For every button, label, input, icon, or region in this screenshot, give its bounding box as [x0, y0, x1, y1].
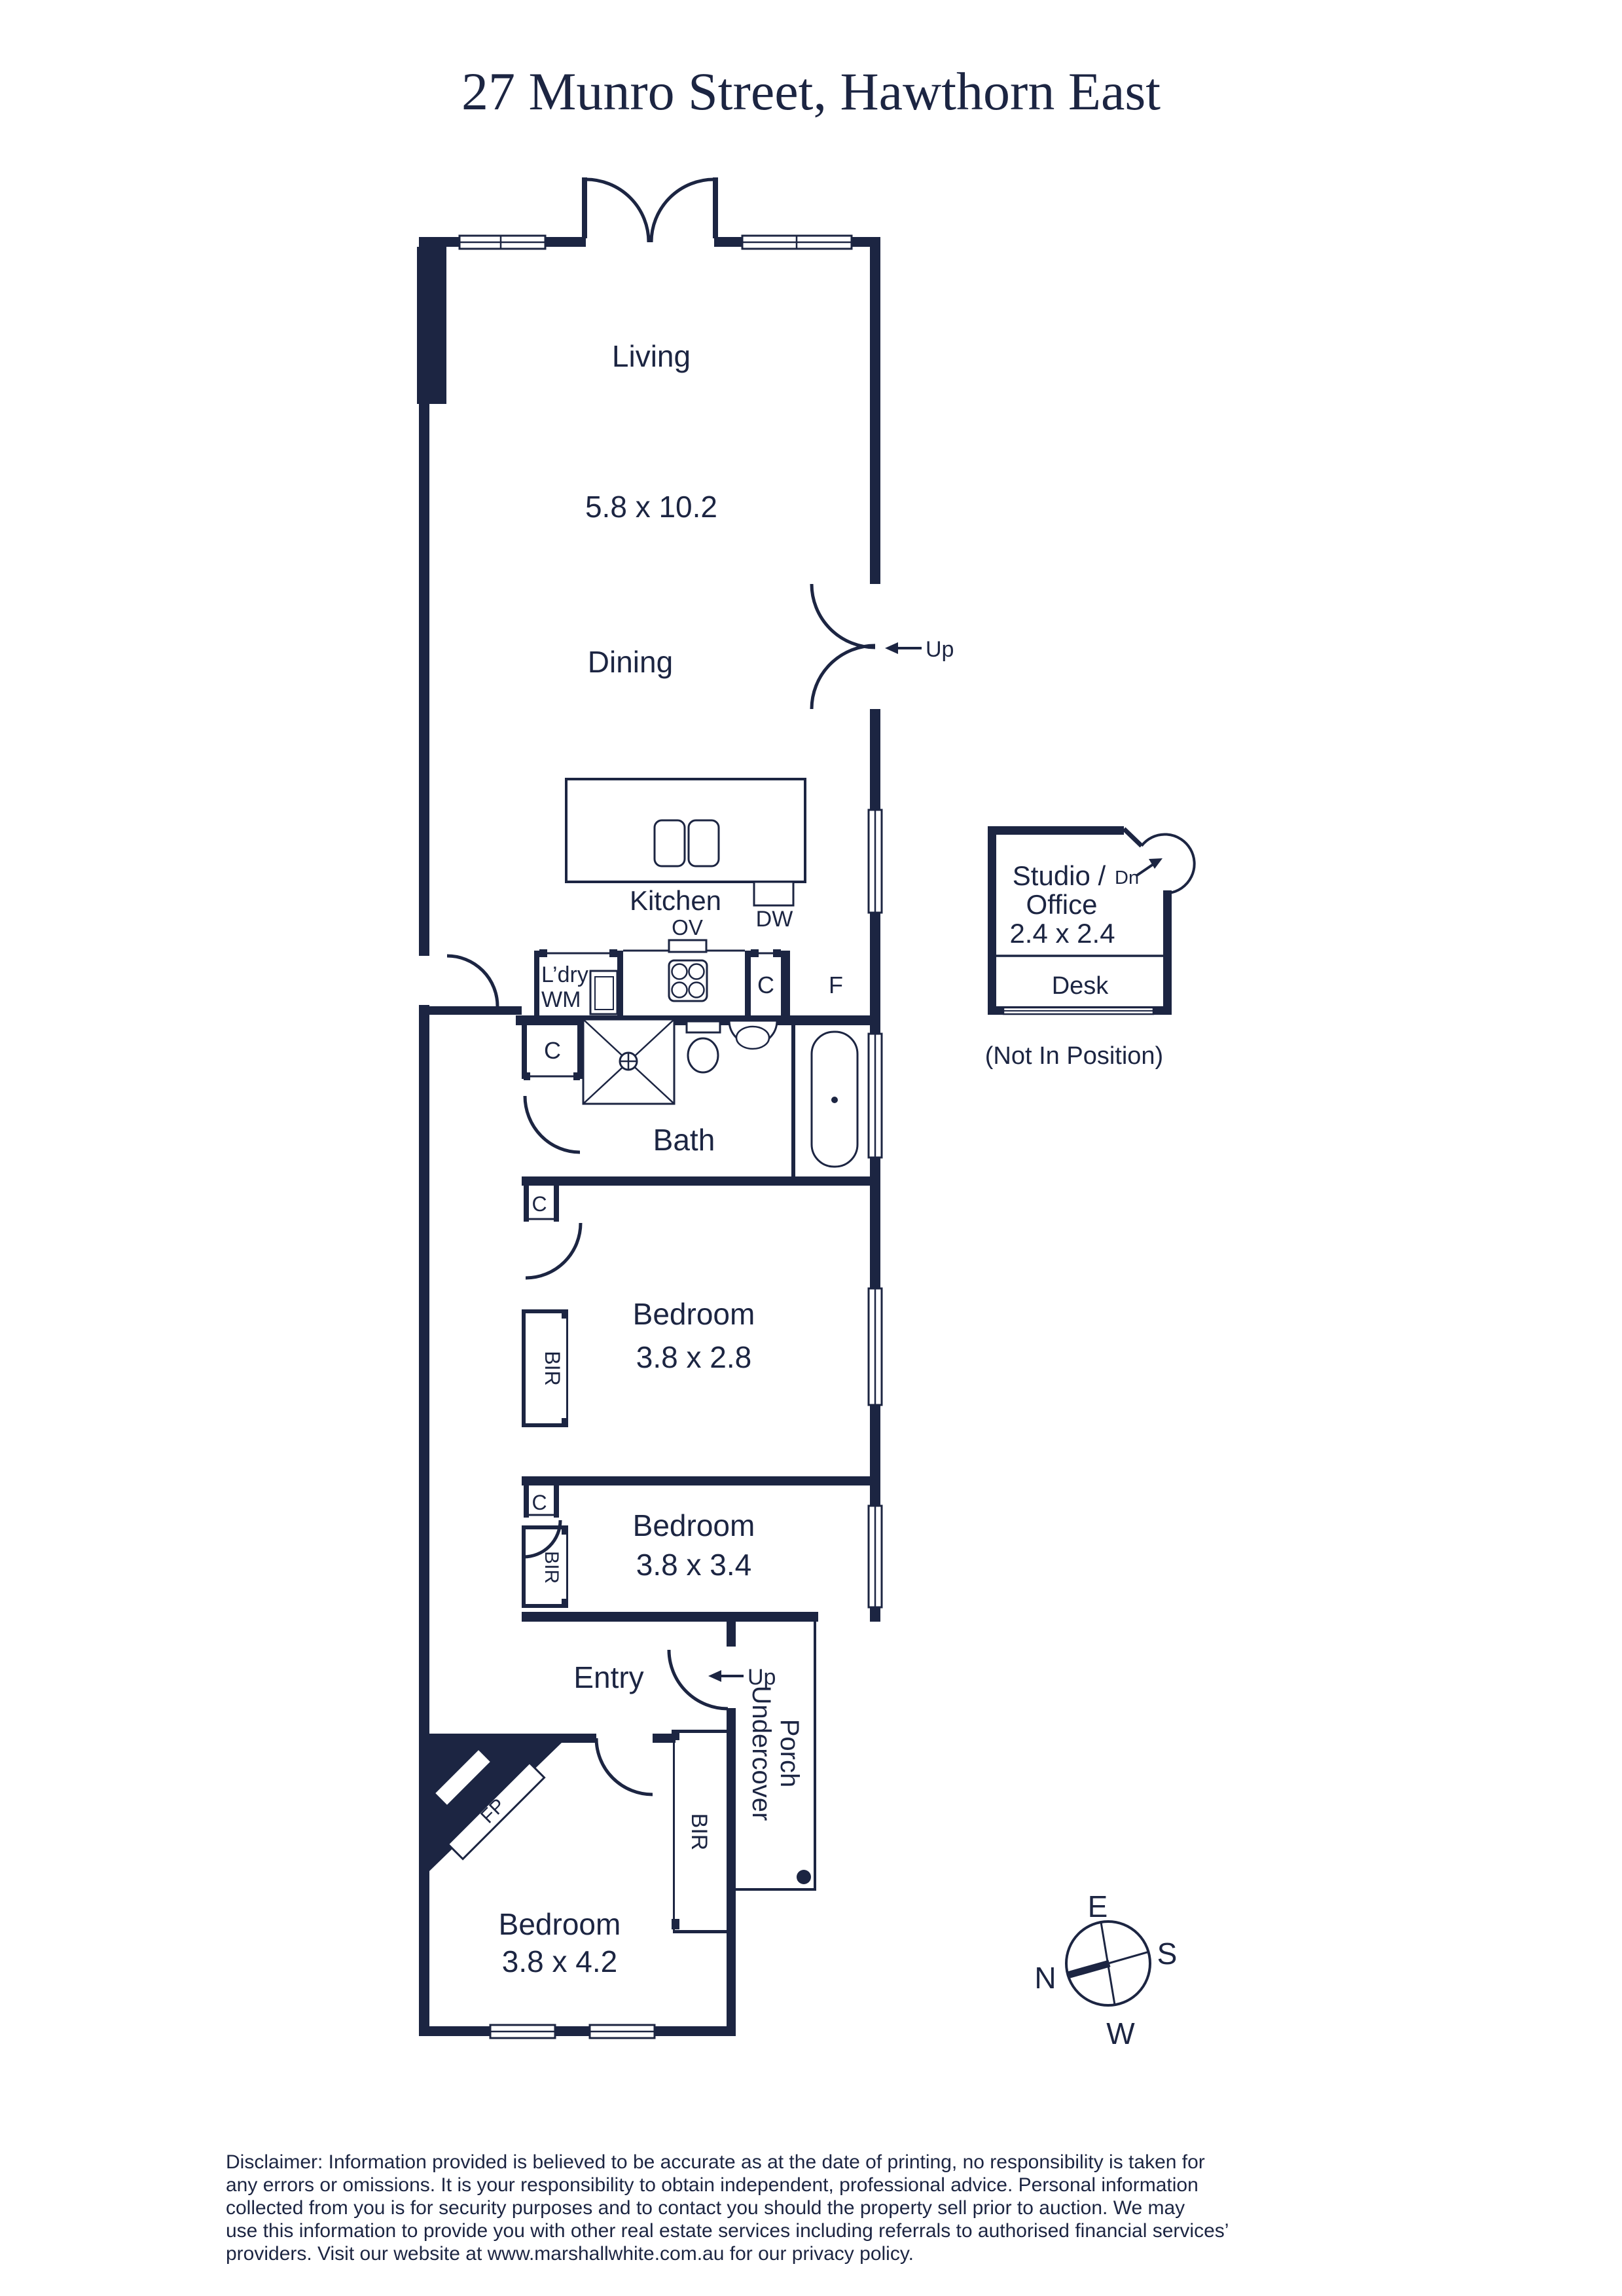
porch-post — [797, 1870, 811, 1884]
porch-label-line1: Undercover — [747, 1686, 776, 1821]
disclaimer-line-1: Disclaimer: Information provided is beli… — [226, 2151, 1205, 2173]
floor-plan-drawing: 27 Munro Street, Hawthorn East — [0, 0, 1622, 2296]
bed3-window-right — [590, 2025, 655, 2038]
bed3-dims: 3.8 x 4.2 — [502, 1944, 617, 1978]
compass: E S W N — [1034, 1889, 1177, 2050]
living-dims: 5.8 x 10.2 — [585, 490, 717, 524]
compass-east: E — [1088, 1889, 1108, 1923]
washing-machine — [590, 971, 617, 1014]
bed1-label: Bedroom — [633, 1297, 755, 1331]
bath-window — [869, 1034, 882, 1157]
fridge-label: F — [829, 972, 843, 998]
studio-label-line1: Studio / — [1013, 860, 1106, 891]
bed1-cupboard-label: C — [532, 1192, 547, 1216]
bed2-window — [869, 1506, 882, 1607]
bed3-window-left — [490, 2025, 555, 2038]
sink-right — [689, 820, 719, 866]
compass-north: N — [1034, 1961, 1056, 1995]
bed1-window — [869, 1288, 882, 1405]
studio-labels: Studio / Dn Office 2.4 x 2.4 Desk (Not I… — [985, 860, 1163, 1070]
hob — [669, 960, 707, 1001]
bed2-dims: 3.8 x 3.4 — [636, 1548, 751, 1582]
disclaimer-line-5: providers. Visit our website at www.mars… — [226, 2243, 914, 2265]
compass-west: W — [1106, 2016, 1135, 2050]
studio-down-arrow — [1137, 858, 1162, 875]
dishwasher-box — [754, 882, 793, 905]
compass-north-needle — [1068, 1963, 1109, 1975]
compass-south: S — [1157, 1937, 1178, 1971]
laundry-label: L’dry — [541, 962, 588, 987]
studio-label-line2: Office — [1026, 889, 1098, 920]
studio-desk-label: Desk — [1052, 972, 1109, 1000]
dining-label: Dining — [588, 645, 673, 679]
dining-up-label: Up — [926, 637, 954, 662]
page-title: 27 Munro Street, Hawthorn East — [461, 62, 1161, 121]
entry-up-arrow — [708, 1670, 744, 1682]
shower — [583, 1019, 674, 1104]
disclaimer-line-2: any errors or omissions. It is your resp… — [226, 2174, 1198, 2196]
bed3-robe-label: BIR — [687, 1813, 712, 1851]
entry-label: Entry — [573, 1660, 643, 1694]
disclaimer-line-3: collected from you is for security purpo… — [226, 2197, 1185, 2219]
oven-label: OV — [672, 915, 703, 939]
bed1-robe-label: BIR — [541, 1351, 564, 1385]
basin — [729, 1021, 777, 1049]
bath-cupboard-label: C — [544, 1037, 561, 1064]
bed2-label: Bedroom — [633, 1508, 755, 1542]
disclaimer: Disclaimer: Information provided is beli… — [226, 2151, 1229, 2265]
bath-fixtures — [583, 1019, 857, 1167]
studio-down-label: Dn — [1115, 867, 1139, 888]
studio-dims: 2.4 x 2.4 — [1009, 918, 1115, 949]
kitchen-window — [869, 810, 882, 913]
sink-left — [655, 820, 685, 866]
bed2-robe-label: BIR — [541, 1551, 562, 1584]
kitchen-cupboard-label: C — [757, 972, 774, 998]
studio-note: (Not In Position) — [985, 1042, 1163, 1070]
living-window-right — [742, 236, 852, 249]
bed1-dims: 3.8 x 2.8 — [636, 1340, 751, 1374]
floorplan-page: 27 Munro Street, Hawthorn East — [0, 0, 1622, 2296]
kitchen-label: Kitchen — [630, 885, 721, 916]
dining-up-arrow — [885, 642, 922, 654]
toilet — [687, 1021, 720, 1072]
fireplace: FP — [429, 1743, 562, 1871]
bath-label: Bath — [653, 1123, 715, 1157]
oven-box — [669, 940, 706, 952]
bathtub — [812, 1032, 857, 1167]
dishwasher-label: DW — [756, 907, 793, 932]
bed2-cupboard-label: C — [532, 1491, 547, 1514]
living-label: Living — [612, 339, 691, 373]
living-window-left — [460, 236, 545, 249]
laundry-wm-label: WM — [541, 987, 581, 1012]
disclaimer-line-4: use this information to provide you with… — [226, 2220, 1229, 2242]
porch-label-line2: Porch — [775, 1719, 804, 1788]
bed3-label: Bedroom — [499, 1907, 621, 1941]
